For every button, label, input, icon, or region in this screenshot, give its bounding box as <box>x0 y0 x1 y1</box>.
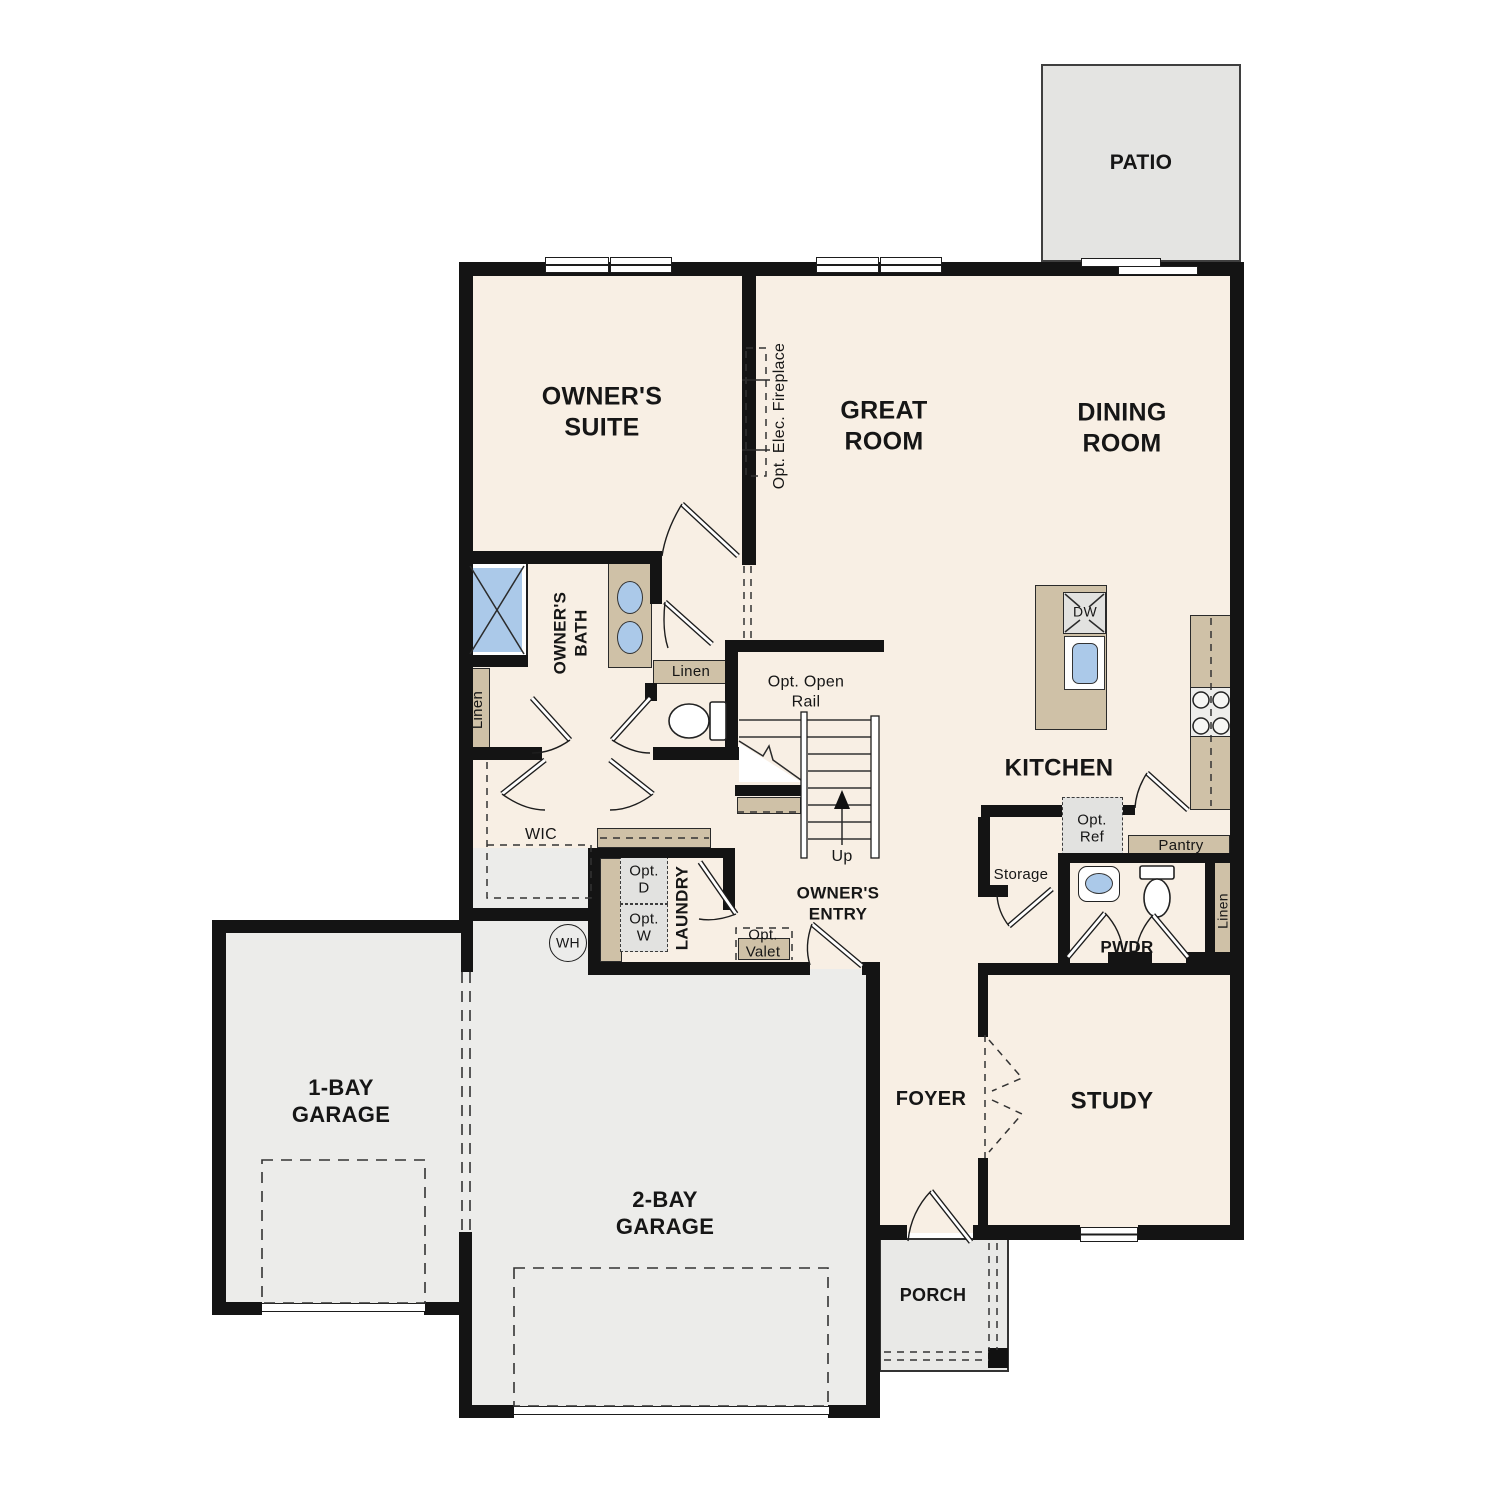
floor-plan: PATIO OWNER'S SUITE GREAT ROOM DINING RO… <box>0 0 1500 1500</box>
room-label-great-room: GREAT ROOM <box>840 396 927 457</box>
room-label-laundry: LAUNDRY <box>673 866 694 951</box>
optional-dashed-lines <box>262 348 1211 1406</box>
car-space-2bay <box>514 1268 828 1406</box>
annotation-opt-dryer: Opt. D <box>629 864 659 897</box>
room-label-owners-entry: OWNER'S ENTRY <box>797 883 880 924</box>
room-label-wic: WIC <box>525 825 557 845</box>
room-label-patio: PATIO <box>1110 150 1173 176</box>
wic-hall-door <box>610 760 653 810</box>
owners-suite-door <box>662 504 738 556</box>
toilet <box>1140 866 1174 917</box>
annotation-dishwasher: DW <box>1073 603 1097 620</box>
annotation-water-heater: WH <box>556 934 580 951</box>
room-label-owners-suite: OWNER'S SUITE <box>542 382 663 443</box>
room-label-kitchen: KITCHEN <box>1005 753 1114 782</box>
annotation-opt-open-rail: Opt. Open Rail <box>768 672 845 711</box>
annotation-linen: Linen <box>469 691 487 729</box>
annotation-linen: Linen <box>1214 893 1231 929</box>
room-label-study: STUDY <box>1071 1086 1154 1115</box>
kitchen-hall-door <box>1135 773 1188 810</box>
front-door <box>908 1191 971 1242</box>
car-space-1bay <box>262 1160 425 1303</box>
laundry-door <box>699 862 736 920</box>
stair-rail <box>801 712 807 858</box>
bath-hall-door <box>664 602 712 648</box>
room-label-2bay-garage: 2-BAY GARAGE <box>616 1187 714 1241</box>
plan-linework <box>0 0 1500 1500</box>
wic-door <box>502 760 545 810</box>
water-closet-door <box>612 698 650 753</box>
room-label-owners-bath: OWNER'S BATH <box>550 592 591 675</box>
annotation-opt-elec-fireplace: Opt. Elec. Fireplace <box>770 343 790 490</box>
shower-x-pattern <box>470 566 524 654</box>
annotation-storage: Storage <box>994 866 1049 884</box>
annotation-up: Up <box>831 847 852 867</box>
annotation-linen: Linen <box>672 663 710 681</box>
room-label-1bay-garage: 1-BAY GARAGE <box>292 1075 390 1129</box>
garage-entry-door <box>807 924 862 966</box>
stair-rail <box>871 716 879 858</box>
toilet <box>669 702 726 740</box>
storage-door <box>997 889 1052 926</box>
up-arrow-head <box>834 790 850 809</box>
bath-door <box>532 698 570 753</box>
optional-french-doors <box>985 1035 1022 1158</box>
room-label-porch: PORCH <box>900 1285 967 1307</box>
stairs <box>739 712 879 858</box>
annotation-opt-valet: Opt. Valet <box>746 928 781 961</box>
annotation-opt-washer: Opt. W <box>629 912 659 945</box>
room-label-foyer: FOYER <box>896 1087 966 1111</box>
optional-fireplace <box>746 348 766 476</box>
room-label-dining-room: DINING ROOM <box>1077 398 1166 459</box>
annotation-pantry: Pantry <box>1158 837 1203 855</box>
annotation-opt-ref: Opt. Ref <box>1077 813 1107 846</box>
room-label-pwdr: PWDR <box>1100 938 1153 959</box>
